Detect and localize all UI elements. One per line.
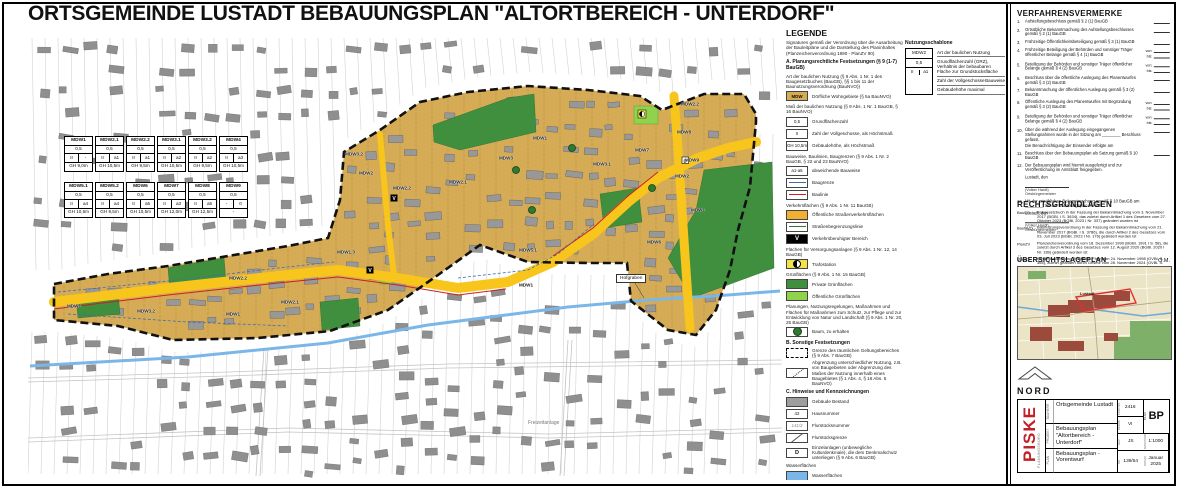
zone-grz: 0,5 — [189, 146, 216, 155]
zone-label: MDW2.2 — [229, 276, 247, 281]
date-entry-line: bis: — [1145, 121, 1170, 125]
legend-item: a1-a5abweichende Bauweise — [786, 166, 904, 176]
zone-table-MDW9: MDW90,5-0- — [219, 182, 248, 218]
legend-item-label: Öffentliche Straßenverkehrsflächen — [812, 212, 884, 217]
zone-floors-bauweise: IIa5 — [127, 200, 154, 209]
date-entry-line: von: — [1145, 63, 1170, 67]
rechtsgrundlage-entry: BauNVOBaunutzungsverordnung in der Fassu… — [1017, 226, 1170, 239]
legend-item-label: Baulinie — [812, 192, 828, 197]
date-entry-line — [1146, 129, 1170, 133]
zone-floors-bauweise: IIa5 — [189, 200, 216, 209]
legend-item-label: Straßenbegrenzungslinie — [812, 224, 863, 229]
legend-swatch-denkmal-icon: D — [786, 448, 808, 458]
legend-entries: A. Planungsrechtliche Festsetzungen (§ 9… — [786, 59, 904, 480]
zone-label: MDW3 — [499, 156, 513, 161]
leisure-area-label: Freizeitanlage — [528, 420, 559, 426]
legend-item-label: Abgrenzung unterschiedlicher Nutzung, z.… — [812, 360, 904, 386]
zone-label: MDW7 — [635, 148, 649, 153]
schablone-label-floors: Zahl der Vollgeschosse — [937, 78, 985, 83]
zone-grz: 0,5 — [189, 192, 216, 201]
legend-swatch-trafo-icon — [786, 259, 808, 269]
title-block-meta-plan: PLANBP — [1144, 400, 1170, 434]
schablone-sample-table: MDW2 0,5 II a1 — [905, 48, 933, 95]
zone-floors-bauweise: IIa4 — [65, 200, 92, 209]
zone-height: GH 12,5m — [189, 209, 216, 217]
rechtsgrundlagen-list: BauGBBaugesetzbuch in der Fassung der Be… — [1017, 211, 1170, 271]
verfahrensvermerk-item: 4.Frühzeitige Beteiligung der Behörden u… — [1017, 49, 1170, 60]
legend-swatch-mdw-icon: MDW — [786, 91, 808, 101]
legend-item-label: Baugrenze — [812, 180, 834, 185]
legend-swatch-text-icon: a1-a5 — [786, 166, 808, 176]
legend-item: Grenze des räumlichen Geltungsbereiches … — [786, 348, 904, 358]
legend-item-label: Hausnummer — [812, 411, 840, 416]
legend-item-label: Einzelanlagen (unbewegliche Kulturdenkma… — [812, 445, 904, 460]
legend-item: Baum, zu erhalten — [786, 327, 904, 337]
date-entry-line — [1146, 20, 1170, 24]
north-indicator: NORD — [1017, 364, 1170, 396]
zone-label: MDW2.1 — [449, 180, 467, 185]
north-label: NORD — [1017, 386, 1170, 396]
zone-name: MDW5.1 — [65, 183, 92, 192]
legend-header: Verkehrsflächen (§ 9 Abs. 1 Nr. 11 BauGB… — [786, 203, 904, 208]
schablone-heading: Nutzungsschablone — [905, 40, 1005, 46]
legend-section: A. Planungsrechtliche Festsetzungen (§ 9… — [786, 59, 904, 71]
zone-table-MDW2.2: MDW2.20,5IIa1GH 9,5m — [126, 136, 155, 172]
zone-grz: 0,5 — [65, 146, 92, 155]
title-block-meta-bearb: BEARB.VI — [1118, 417, 1144, 434]
verfahrensvermerk-item: 7.Bekanntmachung der öffentlichen Ausleg… — [1017, 89, 1170, 98]
date-entry-line: bis: — [1145, 55, 1170, 59]
schablone-label-bw: Bauweise — [985, 78, 1005, 83]
legend-item-label: Trafostation — [812, 262, 836, 267]
zone-floors-bauweise: IIa2 — [189, 154, 216, 163]
legend-section: C. Hinweise und Kennzeichnungen — [786, 389, 904, 395]
date-entry-line: bis: — [1145, 107, 1170, 111]
panel-divider — [1006, 2, 1008, 486]
zone-label: MDW6 — [647, 240, 661, 245]
schablone-labels: Art der baulichen Nutzung Grundflächenza… — [937, 48, 1005, 95]
zone-height: GH 12,0m — [158, 209, 185, 217]
legend-item: 42Hausnummer — [786, 409, 904, 419]
overview-place-label: Lustadt — [1080, 291, 1094, 296]
zone-label: MDW8 — [677, 130, 691, 135]
date-entry-line — [1146, 77, 1170, 81]
verfahrensvermerk-item: 6.Beschluss über die öffentliche Auslegu… — [1017, 77, 1170, 86]
zone-table-MDW3.1: MDW3.10,5IIa2GH 10,5m — [157, 136, 186, 172]
legend-item-label: Verkehrsberuhigter Bereich — [812, 236, 868, 241]
legend-swatch-dash-icon — [786, 348, 808, 358]
zone-grz: 0,5 — [158, 146, 185, 155]
legend-swatch-fill-lgreen-icon — [786, 291, 808, 301]
zone-label: MDW1 — [67, 304, 81, 309]
legend-item: Trafostation — [786, 259, 904, 269]
zone-table-MDW2.1: MDW2.10,5IIa1GH 10,5m — [95, 136, 124, 172]
verfahrensvermerk-item: 1.Aufstellungsbeschluss gemäß § 2 (1) Ba… — [1017, 20, 1170, 26]
zone-table-MDW8: MDW80,5IIa5GH 12,5m — [188, 182, 217, 218]
zone-floors-bauweise: IIa3 — [158, 200, 185, 209]
zone-height: - — [220, 209, 247, 217]
zone-label: MDW3.2 — [137, 309, 155, 314]
legend-header: Flächen für Versorgungsanlagen (§ 9 Abs.… — [786, 247, 904, 257]
zone-grz: 0,5 — [127, 146, 154, 155]
legend-item: Private Grünflächen — [786, 279, 904, 289]
zone-table-MDW3.2: MDW3.20,5IIa2GH 9,5m — [188, 136, 217, 172]
zone-label: MDW2.2 — [393, 186, 411, 191]
zone-height: GH 9,5m — [96, 209, 123, 217]
legend-swatch-text-icon: II — [786, 129, 808, 139]
zone-height: GH 10,5m — [127, 209, 154, 217]
zone-floors-bauweise: IIa4 — [96, 200, 123, 209]
verfahrensvermerk-item: 11.Beschluss über den Bebauungsplan als … — [1017, 152, 1170, 161]
page-title: ORTSGEMEINDE LUSTADT BEBAUUNGSPLAN "ALTO… — [28, 2, 978, 26]
legend-header: Art der baulichen Nutzung (§ 9 Abs. 1 Nr… — [786, 74, 904, 89]
zone-label: MDW1 — [533, 136, 547, 141]
date-entry-line: von: — [1145, 101, 1170, 105]
legend-header: Grünflächen (§ 9 Abs. 1 Nr. 15 BauGB) — [786, 272, 904, 277]
legend-swatch-pnum-icon: 141/3 — [786, 421, 808, 431]
schablone-label-gh: Gebäudehöhe maximal — [937, 86, 1005, 95]
zone-name: MDW4 — [220, 137, 247, 146]
legend-header: Planungen, Nutzungsregelungen, Maßnahmen… — [786, 304, 904, 325]
trafo-marker — [638, 110, 646, 118]
schablone-bw: a1 — [920, 70, 933, 75]
legend-item: Straßenbegrenzungslinie — [786, 222, 904, 232]
margin-panel: VERFAHRENSVERMERKE 1.Aufstellungsbeschlu… — [1010, 2, 1176, 486]
zone-floors-bauweise: IIa1 — [127, 154, 154, 163]
zone-height: GH 9,5m — [189, 163, 216, 171]
zone-label: MDW3.2 — [345, 152, 363, 157]
legend-swatch-fill-grey-icon — [786, 397, 808, 407]
zone-name: MDW3.2 — [189, 137, 216, 146]
overview-map: Lustadt — [1017, 266, 1172, 360]
legend-swatch-text-icon: GH 10,5m — [786, 141, 808, 151]
plan-sheet: ORTSGEMEINDE LUSTADT BEBAUUNGSPLAN "ALTO… — [0, 0, 1180, 490]
legend-item: Wasserflächen — [786, 471, 904, 481]
zone-name: MDW2.1 — [96, 137, 123, 146]
legend-swatch-text-icon: 42 — [786, 409, 808, 419]
verfahrensvermerk-item: 12.Der Bebauungsplan wird hiermit ausgef… — [1017, 164, 1170, 197]
legend-intro: Signaturen gemäß der Verordnung über die… — [786, 40, 904, 56]
date-entry-line — [1146, 152, 1170, 156]
title-block-meta-datum: DATUMJanuar 2025 — [1144, 451, 1170, 472]
title-block: PLANUNGSBÜRO PISKE BAUHERROrtsgemeinde L… — [1017, 399, 1170, 473]
zone-label: MDW1 — [691, 208, 705, 213]
stream-label: Hofgraben — [616, 274, 646, 283]
zone-grz: 0,5 — [96, 192, 123, 201]
verfahrensvermerk-item: 5.Beteiligung der Behörden und sonstiger… — [1017, 63, 1170, 74]
zone-label: MDW2.2 — [681, 102, 699, 107]
zone-floors-bauweise: II- — [65, 154, 92, 163]
zone-grz: 0,5 — [127, 192, 154, 201]
legend-item: 141/3Flurstücksnummer — [786, 421, 904, 431]
legend-item: Flurstücksgrenze — [786, 433, 904, 443]
legend-swatch-line-blue-icon — [786, 178, 808, 188]
zone-label: MDW5.1 — [519, 248, 537, 253]
legend-swatch-abgrenz-icon — [786, 368, 808, 378]
legend-item: IIZahl der Vollgeschosse, als Höchstmaß — [786, 129, 904, 139]
legend-item-label: Flurstücksgrenze — [812, 435, 847, 440]
zone-floors-bauweise: -0 — [220, 200, 247, 209]
verkehrsberuhigt-marker: V — [391, 195, 398, 203]
legend-section: B. Sonstige Festsetzungen — [786, 340, 904, 346]
title-block-meta-gez: GEZ.JS — [1118, 434, 1144, 451]
zone-name: MDW5.2 — [96, 183, 123, 192]
legend-swatch-tree-icon — [786, 327, 808, 337]
legend-swatch-vbox-icon: V — [786, 234, 808, 244]
zone-grz: 0,5 — [158, 192, 185, 201]
legend-header: Bauweise, Baulinien, Baugrenzen (§ 9 Abs… — [786, 154, 904, 164]
title-block-row: PROJEKTBebauungsplan "Altortbereich - Un… — [1046, 424, 1117, 448]
legend-item: MDWDörfliche Wohngebiete (§ 5a BauNVO) — [786, 91, 904, 101]
legend-item-label: Grenze des räumlichen Geltungsbereiches … — [812, 348, 904, 358]
zone-grz: 0,5 — [220, 146, 247, 155]
legend-item-label: Gebäude Bestand — [812, 399, 849, 404]
date-entry-line — [1146, 89, 1170, 93]
legend-item: Öffentliche Straßenverkehrsflächen — [786, 210, 904, 220]
zone-height: GH 10,5m — [96, 163, 123, 171]
zone-table-MDW4: MDW40,5IIa3GH 10,5m — [219, 136, 248, 172]
legend-swatch-fill-dgreen-icon — [786, 279, 808, 289]
zone-grz: 0,5 — [220, 192, 247, 201]
legend-item-label: Gebäudehöhe, als Höchstmaß — [812, 143, 874, 148]
verfahrensvermerke-list: 1.Aufstellungsbeschluss gemäß § 2 (1) Ba… — [1017, 20, 1170, 233]
zone-table-MDW1: MDW10,5II-GH 9,0m — [64, 136, 93, 172]
zone-name: MDW8 — [189, 183, 216, 192]
verfahrensvermerk-item: 3.Frühzeitige Öffentlichkeitsbeteiligung… — [1017, 41, 1170, 47]
title-block-meta: PROJ.NR.2416PLANBPBEARB.VIGEZ.JSMASSSTAB… — [1118, 400, 1169, 472]
legend-item: GH 10,5mGebäudehöhe, als Höchstmaß — [786, 141, 904, 151]
schablone-label-art: Art der baulichen Nutzung — [937, 48, 1005, 57]
title-block-meta-massstab: MASSSTAB1:1000 — [1144, 434, 1170, 451]
zone-label: MDW1 — [226, 312, 240, 317]
legend-item-label: Zahl der Vollgeschosse, als Höchstmaß — [812, 131, 893, 136]
schablone-floors: II — [906, 70, 920, 75]
legend-swatch-line-green-icon — [786, 222, 808, 232]
verfahrensvermerk-item: 10.Über die während der Auslegung eingeg… — [1017, 129, 1170, 149]
zone-height: GH 10,5m — [65, 209, 92, 217]
zone-table-MDW5.2: MDW5.20,5IIa4GH 9,5m — [95, 182, 124, 218]
verkehrsberuhigt-marker: V — [367, 267, 374, 275]
zone-table-MDW5.1: MDW5.10,5IIa4GH 10,5m — [64, 182, 93, 218]
zone-floors-bauweise: IIa1 — [96, 154, 123, 163]
zone-floors-bauweise: IIa3 — [220, 154, 247, 163]
legend-header: Wasserflächen — [786, 463, 904, 468]
legend-panel: LEGENDE Signaturen gemäß der Verordnung … — [786, 28, 904, 480]
date-entry-line: von: — [1145, 49, 1170, 53]
legend-item-label: Grundflächenzahl — [812, 119, 848, 124]
verfahrensvermerk-item: 8.Öffentliche Auslegung des Planentwurfe… — [1017, 101, 1170, 112]
legend-header: Maß der baulichen Nutzung (§ 9 Abs. 1 Nr… — [786, 104, 904, 114]
schablone-grz: 0,5 — [906, 59, 932, 69]
date-entry-line: von: — [1145, 115, 1170, 119]
schablone-art: MDW2 — [906, 49, 932, 59]
zone-name: MDW9 — [220, 183, 247, 192]
title-block-meta-projnr: PROJ.NR.2416 — [1118, 400, 1144, 417]
logo-cell: PLANUNGSBÜRO PISKE — [1018, 400, 1046, 472]
date-entry-line — [1146, 41, 1170, 45]
legend-item-label: Baum, zu erhalten — [812, 329, 849, 334]
zone-name: MDW2.2 — [127, 137, 154, 146]
zone-label: MDW9 — [685, 158, 699, 163]
date-entry-line: bis: — [1145, 69, 1170, 73]
legend-item-label: Private Grünflächen — [812, 282, 853, 287]
legend-swatch-fill-orange-icon — [786, 210, 808, 220]
legend-item: Öffentliche Grünflächen — [786, 291, 904, 301]
schablone-label-grz: Grundflächenzahl (GRZ), Verhältnis der b… — [937, 57, 1005, 76]
overview-map-graphic — [1018, 267, 1171, 359]
legend-item: VVerkehrsberuhigter Bereich — [786, 234, 904, 244]
zone-name: MDW6 — [127, 183, 154, 192]
zone-label: MDW1.3 — [337, 250, 355, 255]
legend-swatch-text-icon: 0,5 — [786, 117, 808, 127]
zone-height: GH 9,5m — [127, 163, 154, 171]
zone-name: MDW7 — [158, 183, 185, 192]
legend-item: Baugrenze — [786, 178, 904, 188]
legend-item-label: Wasserflächen — [812, 473, 842, 478]
zone-label: MDW2 — [675, 174, 689, 179]
legend-item: Abgrenzung unterschiedlicher Nutzung, z.… — [786, 360, 904, 386]
legend-item: Gebäude Bestand — [786, 397, 904, 407]
title-block-rows: BAUHERROrtsgemeinde LustadtPROJEKTBebauu… — [1046, 400, 1118, 472]
nutzungsschablone-explainer: Nutzungsschablone MDW2 0,5 II a1 Art der… — [905, 40, 1005, 95]
signature-block: Lustadt, den(Volker Hardt)Ortsbürgermeis… — [1025, 176, 1144, 197]
zone-table-MDW6: MDW60,5IIa5GH 10,5m — [126, 182, 155, 218]
legend-item-label: abweichende Bauweise — [812, 168, 860, 173]
zone-height: GH 10,5m — [220, 163, 247, 171]
map-canvas: VVD MDW10,5II-GH 9,0mMDW2.10,5IIa1GH 10,… — [28, 30, 782, 482]
rechtsgrundlage-entry: PlanZVPlanzeichenverordnung vom 18. Deze… — [1017, 242, 1170, 255]
legend-item: DEinzelanlagen (unbewegliche Kulturdenkm… — [786, 445, 904, 460]
zone-label: MDW2 — [359, 171, 373, 176]
zone-grz: 0,5 — [96, 146, 123, 155]
verfahrensvermerk-item: 2.Ortsübliche Bekanntmachung des Aufstel… — [1017, 28, 1170, 37]
legend-swatch-line-red-icon — [786, 190, 808, 200]
logo-piske: PISKE — [1020, 406, 1040, 462]
title-block-meta-nr: NR.139/54 — [1118, 451, 1144, 472]
title-block-row: BAUHERROrtsgemeinde Lustadt — [1046, 400, 1117, 424]
verfahrensvermerk-item: 9.Beteiligung der Behörden und sonstiger… — [1017, 115, 1170, 126]
legend-item-label: Dörfliche Wohngebiete (§ 5a BauNVO) — [812, 94, 891, 99]
zoning-map: VVD — [28, 30, 782, 482]
date-entry-line — [1146, 28, 1170, 32]
zone-height: GH 9,0m — [65, 163, 92, 171]
legend-item: 0,5Grundflächenzahl — [786, 117, 904, 127]
title-block-row: PLANBebauungsplan - Vorentwurf — [1046, 449, 1117, 472]
zone-label: MDW3.1 — [593, 162, 611, 167]
legend-swatch-pline-icon — [786, 433, 808, 443]
north-arrow-icon — [1017, 364, 1053, 381]
zone-label: MDW2.1 — [281, 300, 299, 305]
zone-height: GH 10,5m — [158, 163, 185, 171]
zone-floors-bauweise: IIa2 — [158, 154, 185, 163]
zone-grz: 0,5 — [65, 192, 92, 201]
signature-line — [1025, 181, 1069, 188]
zone-label: MDW1 — [519, 283, 533, 288]
zone-table-MDW7: MDW70,5IIa3GH 12,0m — [157, 182, 186, 218]
legend-item-label: Flurstücksnummer — [812, 423, 850, 428]
legend-swatch-fill-water-icon — [786, 471, 808, 481]
zone-name: MDW1 — [65, 137, 92, 146]
legend-item: Baulinie — [786, 190, 904, 200]
legend-heading: LEGENDE — [786, 28, 904, 38]
verfahrensvermerke-heading: VERFAHRENSVERMERKE — [1017, 9, 1170, 18]
rechtsgrundlage-entry: BauGBBaugesetzbuch in der Fassung der Be… — [1017, 211, 1170, 224]
zone-name: MDW3.1 — [158, 137, 185, 146]
legend-item-label: Öffentliche Grünflächen — [812, 294, 860, 299]
